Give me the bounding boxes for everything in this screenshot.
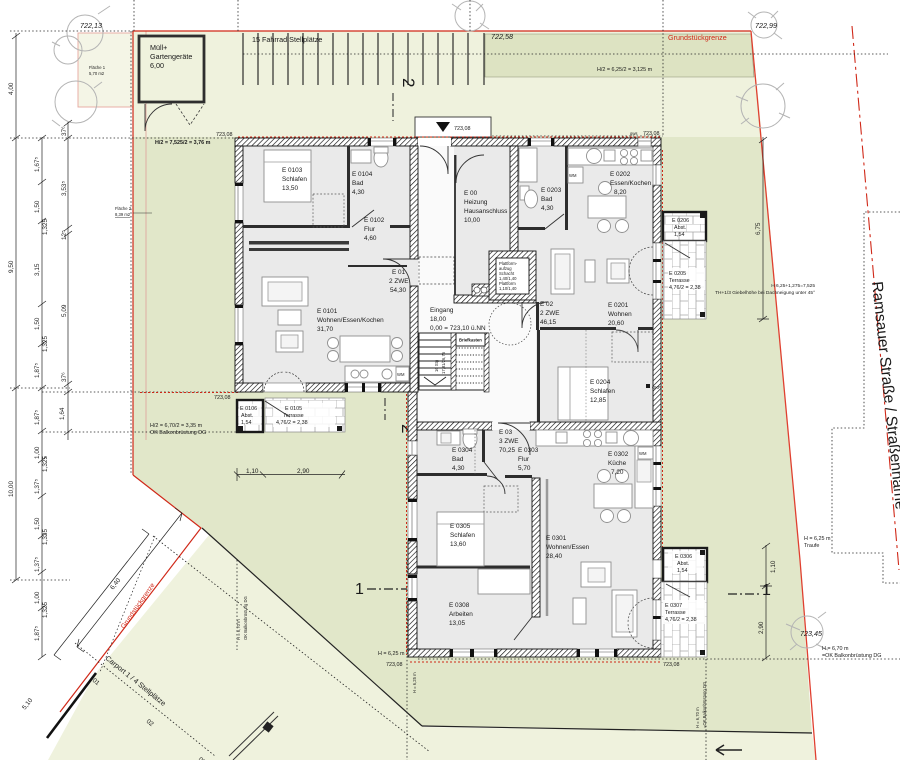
svg-text:1,10/1,40: 1,10/1,40 (499, 286, 517, 291)
svg-text:H = 6,25 m: H = 6,25 m (412, 672, 417, 693)
svg-text:Flur: Flur (518, 456, 530, 463)
svg-text:Schlafen: Schlafen (450, 532, 475, 539)
svg-text:1,87⁵: 1,87⁵ (34, 626, 41, 641)
svg-text:8,39 m2: 8,39 m2 (115, 212, 131, 217)
svg-text:13,60: 13,60 (450, 541, 466, 548)
svg-text:723,08: 723,08 (454, 126, 471, 132)
svg-text:1,64: 1,64 (59, 407, 66, 420)
svg-text:E 0105: E 0105 (285, 406, 302, 412)
svg-text:2,90: 2,90 (758, 621, 765, 634)
svg-text:1,50: 1,50 (34, 200, 41, 213)
svg-text:E 0201: E 0201 (608, 302, 629, 309)
svg-text:Abst.: Abst. (241, 413, 253, 419)
svg-text:Terrasse: Terrasse (283, 413, 304, 419)
svg-text:WM: WM (639, 451, 647, 456)
svg-text:E 0202: E 0202 (610, 171, 631, 178)
svg-text:TH+1/3 Giebelhöhe bei Dachneig: TH+1/3 Giebelhöhe bei Dachneigung unter … (715, 290, 815, 296)
svg-text:Heizung: Heizung (464, 199, 488, 206)
svg-text:E 0203: E 0203 (541, 187, 562, 194)
svg-text:E 0303: E 0303 (518, 447, 539, 454)
svg-text:54,30: 54,30 (390, 287, 406, 294)
svg-text:E 0204: E 0204 (590, 379, 611, 386)
svg-text:1,00: 1,00 (34, 446, 41, 459)
svg-text:H/2 = 6,25/2 = 3,125 m: H/2 = 6,25/2 = 3,125 m (597, 67, 653, 73)
svg-text:Eingang: Eingang (430, 307, 454, 314)
svg-text:3,53⁵: 3,53⁵ (61, 181, 68, 196)
svg-text:17,81/26,75: 17,81/26,75 (441, 351, 446, 374)
svg-text:E 0104: E 0104 (352, 171, 373, 178)
svg-text:1,325: 1,325 (42, 219, 49, 235)
svg-text:Küche: Küche (608, 460, 627, 467)
svg-text:18,00: 18,00 (430, 316, 446, 323)
svg-text:722,13: 722,13 (80, 21, 102, 30)
svg-text:Grundstückgrenze: Grundstückgrenze (668, 33, 727, 42)
svg-text:1,50: 1,50 (34, 517, 41, 530)
svg-text:=OK Balkonbrüstung DG: =OK Balkonbrüstung DG (822, 653, 881, 659)
svg-text:2: 2 (399, 78, 418, 87)
svg-text:WM: WM (569, 173, 577, 178)
svg-text:Schlafen: Schlafen (590, 388, 615, 395)
svg-text:70,25: 70,25 (499, 447, 515, 454)
svg-text:722,58: 722,58 (491, 32, 513, 41)
svg-text:OK Balkonbrüstung DG: OK Balkonbrüstung DG (243, 596, 248, 640)
svg-text:0,00 = 723,10 ü.NN: 0,00 = 723,10 ü.NN (430, 325, 486, 332)
svg-text:1,54: 1,54 (241, 420, 252, 426)
svg-text:10,00: 10,00 (464, 217, 480, 224)
svg-text:1,54: 1,54 (674, 232, 685, 238)
svg-text:15 Fahrrad Stellplätze: 15 Fahrrad Stellplätze (252, 35, 322, 44)
svg-text:1,50: 1,50 (34, 317, 41, 330)
svg-text:12,85: 12,85 (590, 397, 606, 404)
svg-text:723,08: 723,08 (643, 131, 660, 137)
svg-text:Traufe: Traufe (804, 543, 819, 549)
svg-text:8,20: 8,20 (614, 189, 627, 196)
svg-text:4,76/2 = 2,38: 4,76/2 = 2,38 (665, 617, 697, 623)
svg-text:E 0305: E 0305 (450, 523, 471, 530)
svg-text:E 0302: E 0302 (608, 451, 629, 458)
svg-text:4,00: 4,00 (8, 82, 15, 95)
svg-text:5,70 m2: 5,70 m2 (89, 71, 105, 76)
svg-text:1,67⁵: 1,67⁵ (34, 157, 41, 172)
svg-text:46,15: 46,15 (540, 319, 556, 326)
svg-text:H = 6,70 m: H = 6,70 m (822, 646, 849, 652)
svg-text:2 ZWE: 2 ZWE (389, 278, 409, 285)
svg-text:Terrasse: Terrasse (665, 610, 686, 616)
svg-text:WM: WM (397, 372, 405, 377)
svg-text:H = 6,25 m: H = 6,25 m (378, 651, 405, 657)
svg-text:723,08: 723,08 (386, 662, 403, 668)
svg-text:Flur: Flur (364, 226, 376, 233)
svg-text:4,76/2 = 2,38: 4,76/2 = 2,38 (276, 420, 308, 426)
svg-text:1,325: 1,325 (42, 529, 49, 545)
svg-text:3,15: 3,15 (34, 263, 41, 276)
svg-text:723,08: 723,08 (663, 662, 680, 668)
svg-text:OKF: OKF (652, 385, 661, 390)
svg-text:E 0306: E 0306 (675, 554, 692, 560)
svg-text:37⁶: 37⁶ (61, 372, 68, 382)
svg-text:2,90: 2,90 (297, 468, 310, 475)
svg-text:Abst.: Abst. (674, 225, 686, 231)
svg-text:H/2 = 7,525/2 = 3,76 m: H/2 = 7,525/2 = 3,76 m (155, 140, 211, 146)
svg-text:4,30: 4,30 (452, 465, 465, 472)
svg-text:13,05: 13,05 (449, 620, 465, 627)
svg-text:E 0304: E 0304 (452, 447, 473, 454)
svg-text:723,08: 723,08 (216, 132, 233, 138)
svg-text:1,87⁵: 1,87⁵ (34, 410, 41, 425)
svg-text:1,325: 1,325 (42, 456, 49, 472)
svg-text:723,45: 723,45 (800, 629, 823, 638)
svg-text:Fläche 2: Fläche 2 (115, 206, 132, 211)
svg-text:4,76/2 = 2,38: 4,76/2 = 2,38 (669, 285, 701, 291)
svg-text:13,50: 13,50 (282, 185, 298, 192)
svg-text:4,30: 4,30 (541, 205, 554, 212)
svg-text:1,325: 1,325 (42, 602, 49, 618)
svg-text:H = 6,70 m: H = 6,70 m (695, 707, 700, 728)
svg-text:E 03: E 03 (499, 429, 513, 436)
svg-text:722,99: 722,99 (755, 21, 777, 30)
svg-text:6,75: 6,75 (755, 222, 762, 235)
svg-text:4,30: 4,30 (352, 189, 365, 196)
svg-text:1,00: 1,00 (34, 591, 41, 604)
svg-text:723,08: 723,08 (214, 395, 231, 401)
svg-text:Bad: Bad (452, 456, 464, 463)
svg-text:6,00: 6,00 (150, 61, 164, 70)
svg-text:E 01: E 01 (392, 269, 406, 276)
svg-text:1,10: 1,10 (770, 560, 777, 573)
svg-text:E 0206: E 0206 (672, 218, 689, 224)
svg-text:E 02: E 02 (540, 301, 554, 308)
svg-text:E 00: E 00 (464, 190, 478, 197)
svg-text:1: 1 (355, 581, 364, 598)
svg-text:Briefkasten: Briefkasten (459, 338, 482, 343)
svg-text:1,87⁵: 1,87⁵ (34, 363, 41, 378)
svg-text:20,60: 20,60 (608, 320, 624, 327)
svg-text:=OK Balkonbrüstung DG: =OK Balkonbrüstung DG (702, 682, 707, 728)
svg-text:E 0301: E 0301 (546, 535, 567, 542)
svg-text:Wohnen: Wohnen (608, 311, 632, 318)
svg-text:Essen/Kochen: Essen/Kochen (610, 180, 652, 187)
svg-text:3 ZWE: 3 ZWE (499, 438, 519, 445)
svg-text:5,70: 5,70 (518, 465, 531, 472)
svg-text:E 0101: E 0101 (317, 308, 338, 315)
svg-text:H/2 = 6,70/2 = 3,35 m: H/2 = 6,70/2 = 3,35 m (150, 423, 203, 429)
svg-text:H 6,25+1,275=7,525: H 6,25+1,275=7,525 (771, 283, 815, 289)
svg-text:Wohnen/Essen: Wohnen/Essen (546, 544, 590, 551)
svg-text:E 0103: E 0103 (282, 167, 303, 174)
svg-text:1,54: 1,54 (677, 568, 688, 574)
svg-text:Hausanschluss: Hausanschluss (464, 208, 507, 215)
svg-text:Schlafen: Schlafen (282, 176, 307, 183)
svg-text:Müll+: Müll+ (150, 43, 167, 52)
svg-text:Abst.: Abst. (677, 561, 689, 567)
svg-text:12⁵: 12⁵ (61, 230, 68, 240)
svg-text:1,325: 1,325 (42, 336, 49, 352)
svg-text:9,50: 9,50 (8, 260, 15, 273)
svg-text:4,60: 4,60 (364, 235, 377, 242)
svg-text:1,37⁵: 1,37⁵ (34, 557, 41, 572)
svg-text:E 0106: E 0106 (240, 406, 257, 412)
svg-text:H = 6,70 m: H = 6,70 m (236, 619, 241, 640)
svg-text:28,40: 28,40 (546, 553, 562, 560)
svg-text:H = 6,25 m: H = 6,25 m (804, 536, 831, 542)
svg-text:E 0102: E 0102 (364, 217, 385, 224)
svg-text:Arbeiten: Arbeiten (449, 611, 473, 618)
svg-text:E 0205: E 0205 (669, 271, 686, 277)
svg-text:Terrasse: Terrasse (669, 278, 690, 284)
svg-text:10,00: 10,00 (8, 481, 15, 497)
svg-text:Bad: Bad (541, 196, 553, 203)
svg-text:7,20: 7,20 (611, 469, 624, 476)
svg-text:E 0307: E 0307 (665, 603, 682, 609)
svg-text:5,09: 5,09 (61, 304, 68, 317)
svg-text:Fläche 1: Fläche 1 (89, 65, 106, 70)
svg-text:E 0308: E 0308 (449, 602, 470, 609)
svg-text:1,37⁵: 1,37⁵ (34, 479, 41, 494)
svg-text:1: 1 (762, 582, 771, 599)
svg-text:2 ZWE: 2 ZWE (540, 310, 560, 317)
svg-text:37⁶: 37⁶ (61, 126, 68, 136)
svg-text:1,10: 1,10 (246, 468, 259, 475)
svg-text:gws: gws (630, 131, 637, 136)
svg-text:Gartengeräte: Gartengeräte (150, 52, 192, 61)
svg-text:31,70: 31,70 (317, 326, 333, 333)
svg-text:16 Stg: 16 Stg (434, 359, 439, 372)
svg-text:Bad: Bad (352, 180, 364, 187)
svg-text:Wohnen/Essen/Kochen: Wohnen/Essen/Kochen (317, 317, 384, 324)
svg-text:OK Balkonbrüstung DG: OK Balkonbrüstung DG (150, 430, 206, 436)
